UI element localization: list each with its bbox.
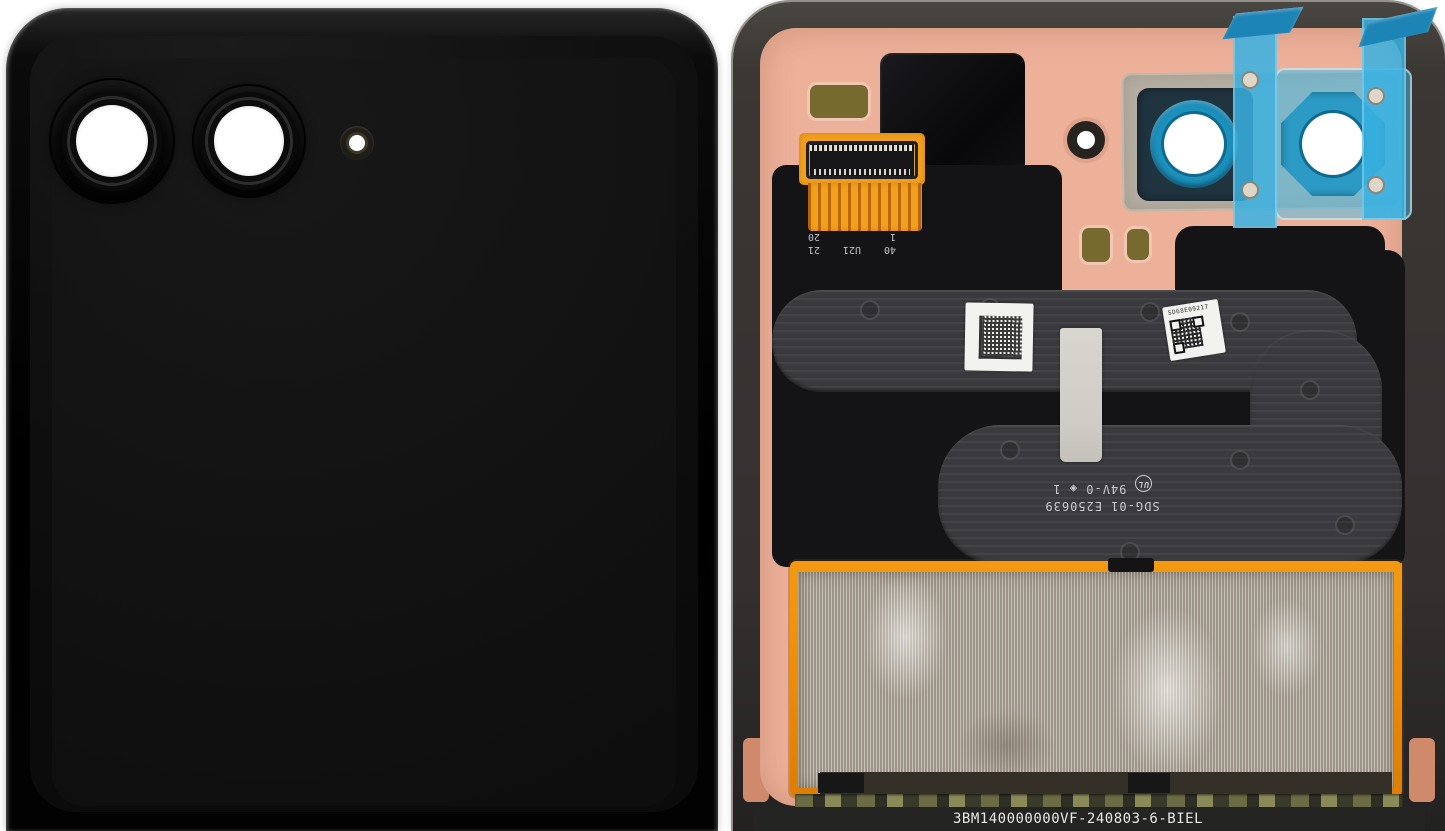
flash-opening-back: [1067, 121, 1105, 159]
pin-label-1: 1: [890, 230, 896, 243]
emi-foil-shield: [798, 572, 1394, 788]
tape-gap-notch: [1108, 558, 1154, 572]
contact-pad-mid-2: [1127, 229, 1149, 260]
screw-hole: [1367, 87, 1385, 105]
foil-tab-right: [1128, 773, 1170, 793]
back-inner-panel: 40 U21 21 1 20: [733, 2, 1445, 831]
contact-pad-mid-1: [1082, 228, 1110, 262]
bottom-frame-bar: 3BM140000000VF-240803-6-BIEL: [753, 807, 1425, 831]
flex-marking-block: SDG-01 E250639 UL 94V-0 ◈ 1: [1035, 474, 1169, 514]
flash-window: [340, 126, 374, 160]
camera-window-right-glass: [1302, 113, 1364, 175]
qr-finder: [1192, 315, 1205, 328]
rivet-hole: [1140, 302, 1160, 322]
pin-row-b: 1 20: [808, 230, 896, 243]
flash-opening-core: [1077, 131, 1095, 149]
bottom-code-text: 3BM140000000VF-240803-6-BIEL: [953, 811, 1203, 827]
foil-lower-band: [820, 772, 1392, 796]
qr-finder: [1173, 342, 1186, 355]
copper-trim-right: [1409, 738, 1435, 802]
cavity-number: 1: [1052, 482, 1060, 496]
datamatrix-label: [964, 302, 1033, 371]
flammability-rating: 94V-0: [1085, 482, 1126, 496]
pin-label-20: 20: [808, 230, 820, 243]
product-photo: 40 U21 21 1 20: [0, 0, 1445, 831]
white-tape-strip: [1060, 328, 1102, 462]
connector-pin-labels: 40 U21 21 1 20: [808, 226, 896, 256]
front-cover-panel: [6, 8, 718, 831]
flex-rating-line: UL 94V-0 ◈ 1: [1035, 475, 1169, 497]
screw-hole: [1241, 181, 1259, 199]
camera-lens-1: [51, 80, 173, 202]
qr-finder: [1169, 319, 1182, 332]
pin-label-40: 40: [884, 243, 896, 256]
rivet-hole: [1230, 312, 1250, 332]
camera-lens-2: [194, 86, 304, 196]
camera-window-left-glass: [1164, 114, 1224, 174]
camera-lens-2-glass: [214, 106, 284, 176]
board-connector-socket: [806, 141, 918, 179]
pcb-edge-strip: [795, 794, 1403, 808]
screw-hole: [1241, 71, 1259, 89]
serial-number-text: SD68E09217: [1168, 303, 1210, 316]
datamatrix-code: [979, 316, 1023, 360]
contact-pad-top-left: [810, 85, 868, 118]
pin-label-21: 21: [808, 243, 820, 256]
serial-qr-label: SD68E09217: [1162, 299, 1226, 361]
rivet-hole: [1230, 450, 1250, 470]
rivet-hole: [1300, 380, 1320, 400]
foil-tab-left: [818, 773, 864, 793]
pin-row-a: 40 U21 21: [808, 243, 896, 256]
rivet-hole: [1335, 515, 1355, 535]
designator-label: U21: [843, 243, 861, 256]
camera-window-left-ring: [1150, 100, 1238, 188]
rivet-hole: [1000, 440, 1020, 460]
screw-hole: [1367, 176, 1385, 194]
camera-lens-1-glass: [76, 105, 148, 177]
fpc-cable-traces: [808, 183, 922, 231]
ul-logo: UL: [1135, 475, 1152, 492]
mold-symbol: ◈: [1069, 482, 1077, 496]
flash-window-core: [349, 135, 365, 151]
rivet-hole: [860, 300, 880, 320]
flex-part-number: SDG-01 E250639: [1035, 497, 1169, 514]
